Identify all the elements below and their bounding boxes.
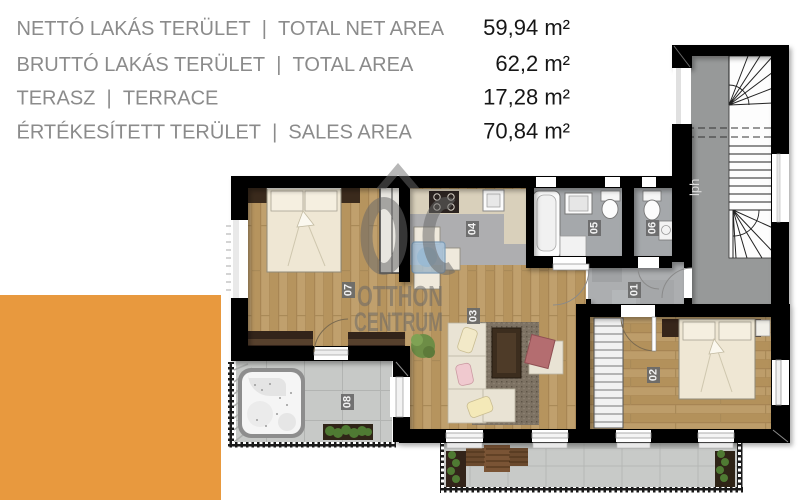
svg-text:ÉRTÉKESÍTETT TERÜLET | SALES: ÉRTÉKESÍTETT TERÜLET | SALES AREA — [17, 121, 413, 144]
svg-text:17,28 m²: 17,28 m² — [483, 85, 570, 110]
svg-text:07: 07 — [343, 284, 355, 296]
svg-text:lph: lph — [687, 179, 702, 196]
svg-text:01: 01 — [629, 284, 641, 296]
svg-text:04: 04 — [467, 222, 479, 235]
svg-text:06: 06 — [647, 222, 659, 234]
svg-text:NETTÓ LAKÁS TERÜLET | TOTAL: NETTÓ LAKÁS TERÜLET | TOTAL NET AREA — [17, 17, 445, 40]
svg-text:70,84 m²: 70,84 m² — [483, 119, 570, 144]
svg-text:59,94 m²: 59,94 m² — [483, 15, 570, 40]
svg-text:BRUTTÓ LAKÁS TERÜLET | TOTAL: BRUTTÓ LAKÁS TERÜLET | TOTAL AREA — [17, 53, 414, 76]
svg-text:62,2 m²: 62,2 m² — [495, 51, 570, 76]
svg-text:TERASZ | TERRACE: TERASZ | TERRACE — [17, 88, 219, 110]
svg-text:08: 08 — [342, 396, 354, 408]
svg-text:CENTRUM: CENTRUM — [354, 307, 443, 337]
svg-text:05: 05 — [589, 222, 601, 234]
svg-text:02: 02 — [648, 369, 660, 381]
svg-text:03: 03 — [468, 310, 480, 322]
